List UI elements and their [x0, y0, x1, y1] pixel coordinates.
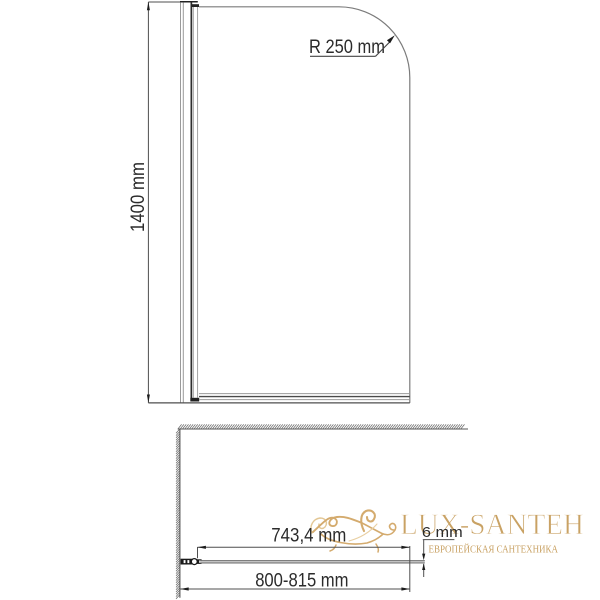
svg-text:743,4 mm: 743,4 mm: [271, 525, 346, 547]
svg-text:ЕВРОПЕЙСКАЯ САНТЕХНИКА: ЕВРОПЕЙСКАЯ САНТЕХНИКА: [429, 543, 559, 555]
svg-text:6 mm: 6 mm: [422, 524, 463, 541]
svg-text:R 250 mm: R 250 mm: [309, 36, 385, 58]
svg-text:800-815 mm: 800-815 mm: [255, 569, 348, 591]
svg-text:1400 mm: 1400 mm: [128, 162, 149, 232]
